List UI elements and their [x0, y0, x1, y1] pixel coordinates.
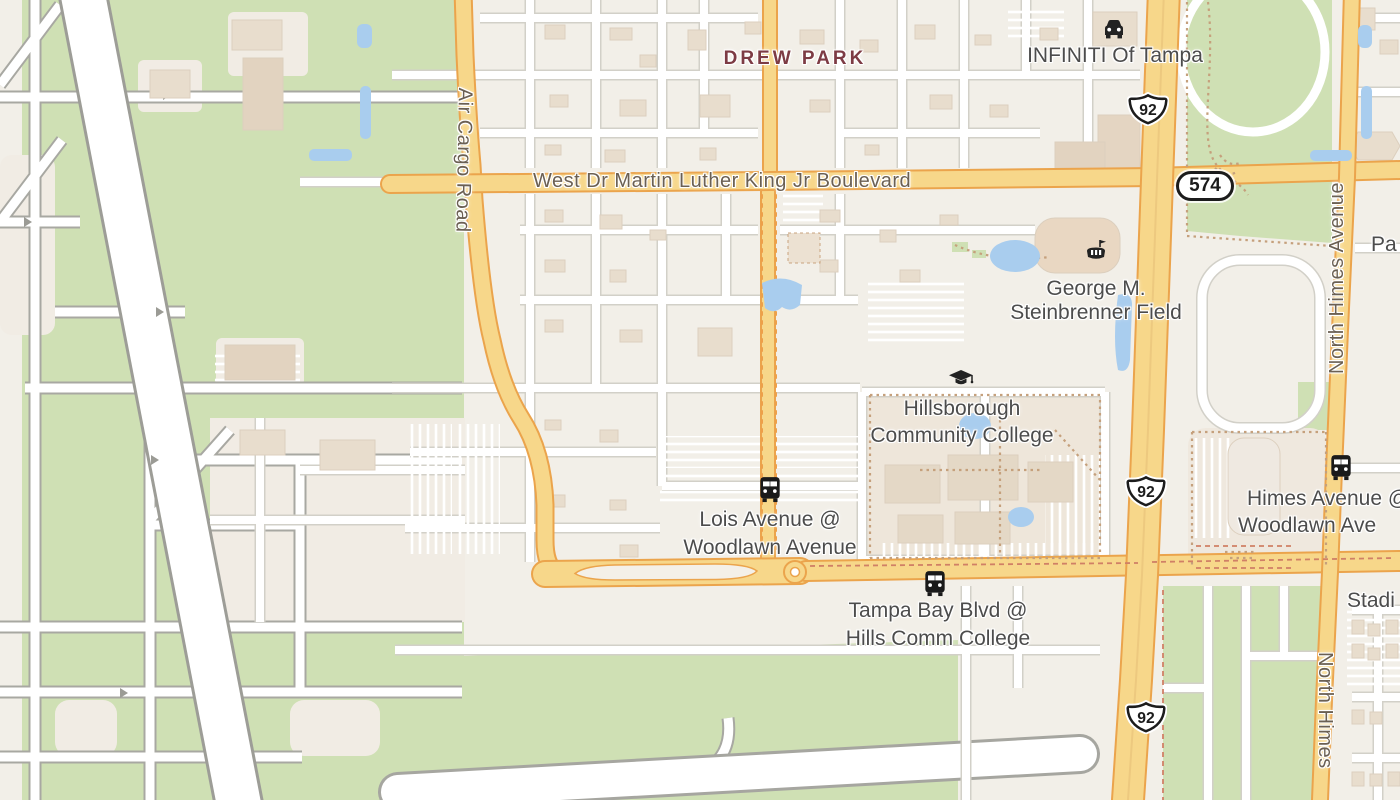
bus-stop-icon-himes[interactable] [1328, 453, 1354, 487]
transit-stop-label-tampa-bay-blvd[interactable]: Tampa Bay Blvd @ Hills Comm College [836, 597, 1040, 653]
us-route-92-shield: 92 [1125, 474, 1167, 513]
bus-stop-icon-lois[interactable] [757, 475, 783, 509]
map-base-graphics [0, 0, 1400, 800]
svg-text:92: 92 [1137, 710, 1155, 727]
median-island [575, 564, 757, 580]
svg-text:92: 92 [1137, 484, 1155, 501]
stop-label-line: Woodlawn Avenue [670, 534, 870, 562]
us-route-92-shield: 92 [1125, 700, 1167, 739]
poi-label-infiniti[interactable]: INFINITI Of Tampa [1013, 43, 1217, 69]
stop-label-line: Hills Comm College [836, 625, 1040, 653]
road-label-air-cargo: Air Cargo Road [449, 88, 478, 233]
poi-label-steinbrenner-field[interactable]: George M. Steinbrenner Field [996, 277, 1196, 325]
map-canvas[interactable]: DREW PARK INFINITI Of Tampa West Dr Mart… [0, 0, 1400, 800]
poi-label-pa-partial: Pa [1371, 232, 1397, 258]
transit-stop-label-lois-woodlawn[interactable]: Lois Avenue @ Woodlawn Avenue [670, 506, 870, 562]
poi-label-stadium-partial: Stadi [1347, 588, 1395, 614]
transit-stop-label-himes-line2[interactable]: Woodlawn Ave [1238, 512, 1376, 540]
poi-label-line: Hillsborough [846, 395, 1078, 422]
poi-label-line: Steinbrenner Field [996, 301, 1196, 325]
neighborhood-label-drew-park: DREW PARK [710, 46, 880, 72]
road-label-north-himes-partial: North Himes [1312, 652, 1338, 769]
road-label-mlk-boulevard: West Dr Martin Luther King Jr Boulevard [533, 168, 911, 194]
state-route-574-shield: 574 [1176, 171, 1234, 201]
poi-label-line: George M. [996, 277, 1196, 301]
svg-text:92: 92 [1139, 102, 1157, 119]
transit-stop-label-himes-line1[interactable]: Himes Avenue @ [1247, 485, 1400, 513]
poi-label-line: Community College [846, 422, 1078, 449]
stadium-icon[interactable] [1082, 238, 1110, 269]
stop-label-line: Tampa Bay Blvd @ [836, 597, 1040, 625]
stop-label-line: Lois Avenue @ [670, 506, 870, 534]
poi-label-hillsborough-community-college[interactable]: Hillsborough Community College [846, 395, 1078, 449]
road-label-north-himes: North Himes Avenue [1324, 182, 1350, 374]
college-graduation-cap-icon[interactable] [947, 368, 975, 395]
us-route-92-shield: 92 [1127, 92, 1169, 131]
